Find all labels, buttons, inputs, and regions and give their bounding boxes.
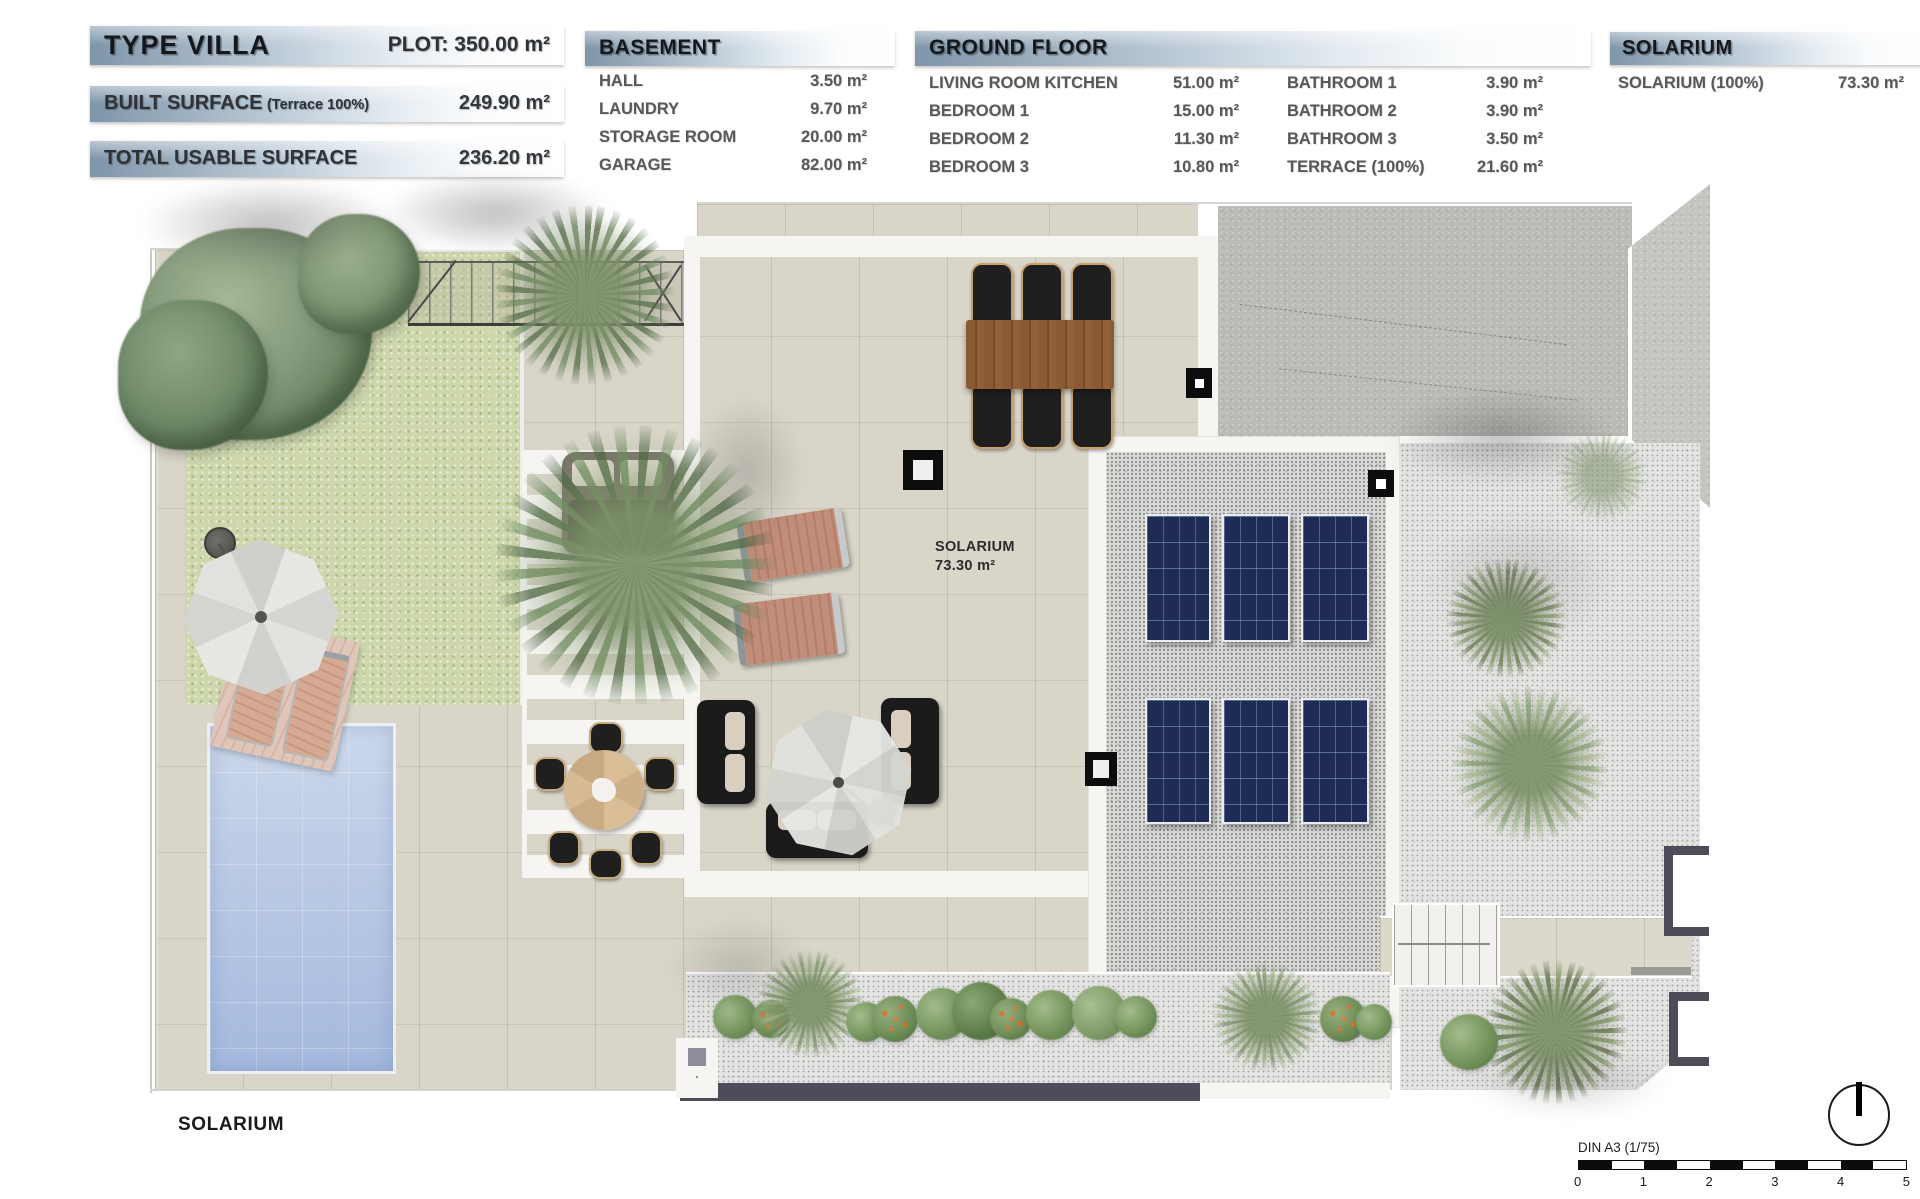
parapet-band-right-upper [1198,236,1218,443]
flowering-bush [872,996,918,1042]
scale-label: DIN A3 (1/75) [1578,1140,1660,1155]
usable-surface-bar: TOTAL USABLE SURFACE 236.20 m² [90,140,564,177]
parapet-band-top [697,236,1218,257]
room-name: SOLARIUM [935,538,1015,557]
table-row: BEDROOM 310.80 m² [929,158,1239,177]
table-center [592,778,616,802]
palm-tree [495,205,675,385]
bush [1356,1004,1392,1040]
marker-center [1093,760,1109,778]
scale-bar [1578,1160,1907,1170]
scale-segment [1775,1161,1808,1169]
table-row: LAUNDRY9.70 m² [599,100,867,119]
staircase-bottom-right [1392,903,1500,987]
scale-segment [1873,1161,1906,1169]
scale-tick: 0 [1574,1174,1581,1189]
plot-area: PLOT: 350.00 m² [388,33,550,57]
scale-segment [1612,1161,1645,1169]
plot-boundary-bottom [150,1089,690,1091]
built-surface-bar: BUILT SURFACE (Terrace 100%) 249.90 m² [90,85,564,122]
table-row: BEDROOM 115.00 m² [929,102,1239,121]
door-frame [1669,992,1709,1066]
planter-wall [680,1083,1200,1101]
table-row: STORAGE ROOM20.00 m² [599,128,867,147]
dining-chair [1021,381,1063,449]
basement-table: HALL3.50 m² LAUNDRY9.70 m² STORAGE ROOM2… [599,72,867,175]
sofa-cushion [725,754,745,792]
built-surface-note: (Terrace 100%) [267,97,369,113]
table-row: LIVING ROOM KITCHEN51.00 m² [929,74,1239,93]
door-threshold [1631,967,1691,975]
dining-chair [630,831,662,865]
villa-title: TYPE VILLA [104,30,270,61]
usable-surface-label: TOTAL USABLE SURFACE [104,147,357,170]
north-indicator-icon [1828,1084,1890,1146]
dining-chair [589,849,623,879]
lamp-pad [676,1038,718,1098]
roof-drain-marker [1368,470,1394,497]
floor-caption: SOLARIUM [178,1114,284,1136]
bush [1440,1014,1498,1070]
room-area: 73.30 m² [935,557,1015,576]
sofa-cushion [725,712,745,750]
scale-segment [1579,1161,1612,1169]
palm-tree [1556,430,1648,522]
dining-chair [644,757,676,791]
garden-lamp-icon [688,1048,706,1066]
parapet-band-bottom [684,871,1088,897]
ground-floor-title: GROUND FLOOR [929,36,1108,60]
table-row: BATHROOM 13.90 m² [1287,74,1543,93]
built-surface-value: 249.90 m² [459,92,550,115]
solar-panel [1222,698,1290,824]
scale-segment [1677,1161,1710,1169]
scale-tick: 3 [1771,1174,1778,1189]
table-row: BEDROOM 211.30 m² [929,130,1239,149]
dining-chair [1071,381,1113,449]
wood-dining-table [966,320,1114,389]
house-roof [1218,206,1632,436]
roof-drain-marker [903,450,943,490]
scale-tick: 4 [1837,1174,1844,1189]
roof-joint-line [1279,368,1577,400]
solar-panel [1222,514,1290,642]
bush [1026,990,1076,1040]
scale-segment [1710,1161,1743,1169]
basement-header: BASEMENT [585,30,895,66]
table-row: HALL3.50 m² [599,72,867,91]
dining-chair [548,831,580,865]
solar-panel [1145,514,1211,642]
bush [713,995,757,1039]
ground-floor-col2: BATHROOM 13.90 m² BATHROOM 23.90 m² BATH… [1287,74,1543,177]
scale-segment [1644,1161,1677,1169]
solar-panel [1301,514,1369,642]
roof-drain-marker [1085,752,1117,786]
scale-segment [1841,1161,1874,1169]
table-row: TERRACE (100%)21.60 m² [1287,158,1543,177]
room-label-solarium: SOLARIUM 73.30 m² [935,538,1015,576]
scale-ticks: 0 1 2 3 4 5 [1574,1174,1910,1189]
table-row: BATHROOM 33.50 m² [1287,130,1543,149]
floor-plan-page: TYPE VILLA PLOT: 350.00 m² BUILT SURFACE… [0,0,1920,1199]
solarium-title: SOLARIUM [1622,37,1733,60]
planter-edge [1200,1083,1390,1099]
plot-boundary-top [697,202,1632,204]
umbrella-hub [255,611,267,623]
ground-floor-header: GROUND FLOOR [915,30,1591,66]
dining-chair [971,381,1013,449]
table-row: GARAGE82.00 m² [599,156,867,175]
marker-center [913,460,933,480]
roof-drain-marker [1186,368,1212,398]
scale-segment [1808,1161,1841,1169]
marker-center [1195,379,1204,388]
solar-panel [1145,698,1211,824]
swimming-pool [207,723,396,1074]
solarium-header: SOLARIUM [1610,31,1920,65]
umbrella-hub [833,777,844,788]
table-row: SOLARIUM (100%)73.30 m² [1618,74,1904,93]
scale-tick: 5 [1903,1174,1910,1189]
north-needle [1856,1082,1862,1116]
solar-panel [1301,698,1369,824]
marker-center [1376,479,1386,489]
stair-arrow-line [1398,943,1490,945]
villa-title-bar: TYPE VILLA PLOT: 350.00 m² [90,25,564,65]
scale-tick: 2 [1706,1174,1713,1189]
scale-segment [1743,1161,1776,1169]
solarium-table: SOLARIUM (100%)73.30 m² [1618,74,1904,93]
scale-tick: 1 [1640,1174,1647,1189]
bush [1115,996,1157,1038]
palm-tree [1446,558,1566,678]
table-row: BATHROOM 23.90 m² [1287,102,1543,121]
basement-title: BASEMENT [599,36,721,60]
roof-joint-line [1239,304,1567,345]
usable-surface-value: 236.20 m² [459,147,550,170]
lounge-sofa [697,700,755,804]
dining-chair [534,757,566,791]
ground-floor-col1: LIVING ROOM KITCHEN51.00 m² BEDROOM 115.… [929,74,1239,177]
door-frame [1664,846,1709,936]
round-dining-table [564,750,644,830]
built-surface-label: BUILT SURFACE [104,92,263,114]
